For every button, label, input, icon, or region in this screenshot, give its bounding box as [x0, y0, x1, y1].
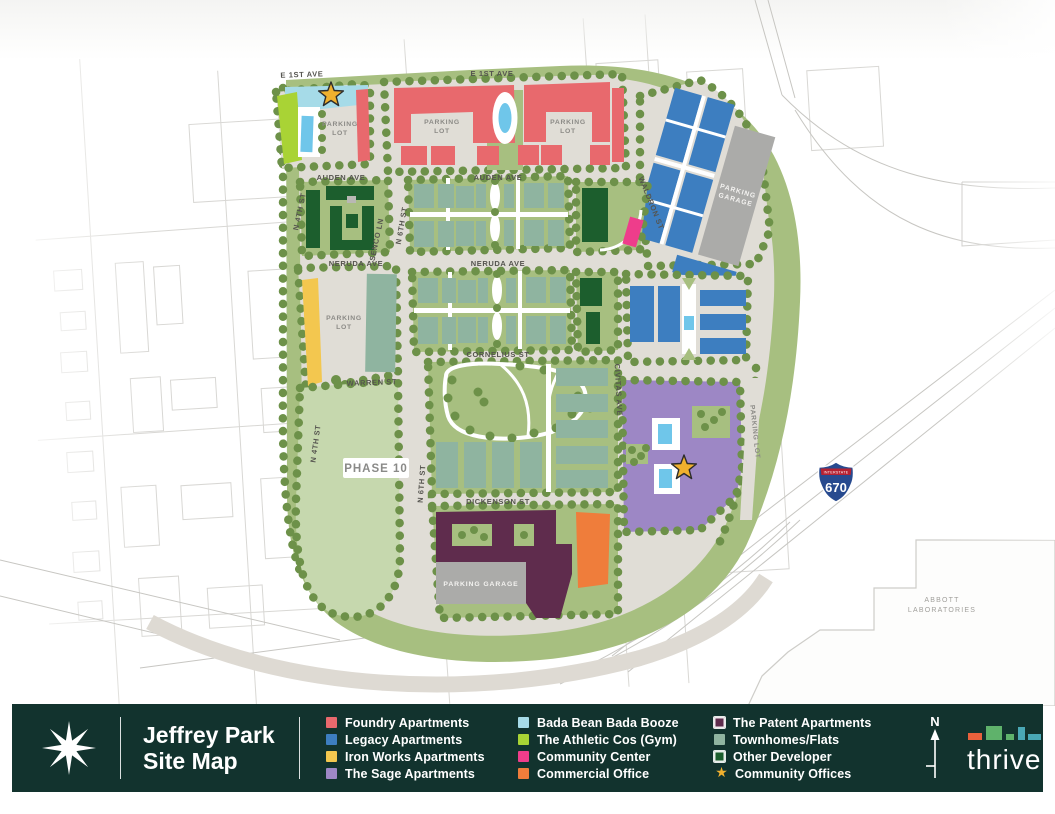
townhome [506, 316, 516, 344]
commercial-swatch [518, 768, 529, 779]
parking-lot-label: PARKING [550, 119, 586, 126]
phase-10-label: PHASE 10 [344, 463, 408, 475]
other-developer-building [580, 278, 602, 306]
townhome [476, 221, 486, 246]
jeffrey-park-site: PARKING LOT PARKING LOT [150, 66, 801, 685]
legend-label: Foundry Apartments [345, 716, 469, 730]
other-developer-building [346, 214, 358, 228]
bada-bean-swatch [518, 717, 529, 728]
townhome [436, 442, 458, 488]
route-number: 670 [825, 480, 847, 495]
legacy-building [700, 314, 746, 330]
street-cornelius-st: CORNELIUS ST [466, 350, 529, 359]
townhome [506, 278, 516, 303]
townhome [418, 317, 438, 344]
townhome [556, 420, 608, 438]
legend-item-patent: The Patent Apartments [714, 716, 892, 730]
map-title-line1: Jeffrey Park [143, 722, 275, 748]
thrive-wordmark: thrive [967, 744, 1041, 775]
townhome [464, 442, 486, 488]
commercial-office-building [576, 512, 610, 588]
legend-bar: Jeffrey Park Site Map Foundry Apartments… [12, 704, 1043, 792]
eight-point-star-icon [40, 719, 98, 777]
legend-item-commercial: Commercial Office [518, 767, 714, 781]
street-auden-ave: AUDEN AVE [317, 173, 366, 182]
abbott-label-line1: ABBOTT [924, 597, 959, 604]
townhome [478, 317, 488, 343]
interstate-text: INTERSTATE [824, 471, 849, 475]
legend-label: Commercial Office [537, 767, 649, 781]
townhome [414, 184, 434, 208]
sage-swatch [326, 768, 337, 779]
legend-label: The Athletic Cos (Gym) [537, 733, 677, 747]
legend-item-townhomes: Townhomes/Flats [714, 733, 892, 747]
pond [499, 103, 512, 133]
legend-item-iron-works: Iron Works Apartments [326, 750, 518, 764]
foundry-strip-building [356, 89, 370, 162]
logo-bar-orange [968, 733, 982, 740]
legend-item-athletic: The Athletic Cos (Gym) [518, 733, 714, 747]
parking-lot-label: PARKING [322, 121, 358, 128]
townhome [438, 221, 454, 247]
logo-bar-green-small [1006, 734, 1014, 740]
townhome [504, 184, 514, 208]
thrive-logo-graphic: thrive [960, 713, 1055, 779]
top-fade [0, 0, 1055, 60]
legend-label: The Sage Apartments [345, 767, 475, 781]
legend-item-foundry: Foundry Apartments [326, 716, 518, 730]
parking-lot-label: PARKING [424, 119, 460, 126]
block-other-developer-east [576, 272, 618, 352]
legacy-swatch [326, 734, 337, 745]
svg-text:LOT: LOT [560, 128, 576, 135]
legacy-building [658, 286, 680, 342]
pool [684, 316, 694, 330]
interstate-670-shield: INTERSTATE 670 [819, 462, 854, 502]
townhome [456, 186, 474, 208]
townhome [556, 368, 608, 386]
map-title: Jeffrey Park Site Map [143, 722, 275, 774]
townhome [458, 280, 476, 303]
svg-text:LOT: LOT [434, 128, 450, 135]
townhome [524, 220, 544, 246]
legend-label: Other Developer [733, 750, 832, 764]
pool [658, 424, 672, 444]
thrive-logo: thrive [960, 713, 1055, 784]
legend-item-bada-bean: Bada Bean Bada Booze [518, 716, 714, 730]
other-developer-building [306, 190, 320, 248]
athletic-swatch [518, 734, 529, 745]
legend-column-3: The Patent Apartments Townhomes/Flats Ot… [714, 716, 892, 781]
townhome [526, 277, 546, 303]
townhome [550, 277, 566, 303]
block-sage-apartments [622, 380, 742, 532]
street-warren-st: WARREN ST [347, 377, 398, 388]
site-map-page: ABBOTT LABORATORIES INTERSTATE 670 [0, 0, 1055, 814]
townhomes-swatch [714, 734, 725, 745]
left-fade [0, 0, 150, 706]
block-iron-works: PARKING LOT [298, 266, 398, 390]
logo-bar-teal [1018, 727, 1025, 740]
legend-label: Bada Bean Bada Booze [537, 716, 679, 730]
logo-bar-green [986, 726, 1002, 740]
pool [659, 469, 672, 488]
legend-item-community-offices: ★ Community Offices [714, 767, 892, 781]
community-center-swatch [518, 751, 529, 762]
other-developer-building [582, 188, 608, 242]
townhome [458, 317, 476, 343]
legend-column-2: Bada Bean Bada Booze The Athletic Cos (G… [518, 716, 714, 781]
townhome [556, 446, 608, 464]
block-patent-commercial: PARKING GARAGE [432, 504, 618, 618]
block-park-townhomes [428, 360, 618, 494]
townhome [492, 442, 514, 488]
legend-columns: Foundry Apartments Legacy Apartments Iro… [326, 716, 892, 781]
parking-lot-label: PARKING [326, 315, 362, 322]
map-canvas: ABBOTT LABORATORIES INTERSTATE 670 [0, 0, 1055, 706]
legend-label: Community Offices [735, 767, 851, 781]
pool [300, 116, 313, 152]
townhome [548, 183, 564, 208]
other-developer-building [586, 312, 600, 344]
townhome [442, 317, 456, 344]
legacy-building [630, 286, 654, 342]
parking-garage-label: PARKING GARAGE [443, 581, 518, 588]
block-foundry: PARKING LOT PARKING LOT [384, 74, 626, 172]
legend-label: Iron Works Apartments [345, 750, 485, 764]
legacy-building [700, 338, 746, 354]
townhome [418, 278, 438, 303]
block-phase-10: PHASE 10 [296, 380, 409, 617]
abbott-label-line2: LABORATORIES [908, 607, 976, 614]
legend-item-legacy: Legacy Apartments [326, 733, 518, 747]
thrive-star-logo [40, 719, 98, 777]
townhome [550, 316, 566, 344]
foundry-swatch [326, 717, 337, 728]
svg-text:LOT: LOT [336, 324, 352, 331]
block-townhomes-north [408, 176, 570, 252]
legend-label: Legacy Apartments [345, 733, 462, 747]
street-auden-ave: AUDEN AVE [474, 173, 523, 182]
block-other-dev-community-center [576, 182, 648, 252]
townhome [526, 316, 546, 344]
townhome [504, 220, 514, 246]
compass-n-label: N [930, 716, 939, 728]
iron-works-swatch [326, 751, 337, 762]
block-bada-bean-gym: PARKING LOT [276, 82, 370, 168]
divider [299, 717, 300, 779]
street-dickenson-st: DICKENSON ST [466, 497, 530, 506]
townhome [478, 278, 488, 303]
block-legacy-east [626, 274, 748, 362]
site-map: ABBOTT LABORATORIES INTERSTATE 670 [0, 0, 1055, 706]
abbott-laboratories-parcel: ABBOTT LABORATORIES [748, 540, 1055, 706]
townhome [548, 220, 564, 246]
townhome [524, 183, 544, 208]
street-e-1st-ave: E 1ST AVE [280, 69, 323, 79]
townhome [456, 221, 474, 246]
map-title-line2: Site Map [143, 748, 275, 774]
townhome [438, 184, 454, 208]
legend-item-sage: The Sage Apartments [326, 767, 518, 781]
street-neruda-ave: NERUDA AVE [471, 259, 525, 268]
legend-item-community-center: Community Center [518, 750, 714, 764]
street-e-1st-ave: E 1ST AVE [471, 69, 514, 78]
townhome-flats-building [365, 274, 397, 373]
right-fade [940, 0, 1055, 540]
legacy-building [700, 290, 746, 306]
townhome [476, 184, 486, 208]
svg-text:LOT: LOT [332, 130, 348, 137]
patent-swatch [714, 717, 725, 728]
community-offices-star-icon: ★ [714, 767, 729, 778]
legend-label: Townhomes/Flats [733, 733, 839, 747]
townhome [414, 221, 434, 247]
townhome [442, 278, 456, 303]
other-developer-building [330, 240, 374, 250]
logo-bar-teal-wide [1028, 734, 1041, 740]
legend-label: The Patent Apartments [733, 716, 871, 730]
north-arrow-icon [925, 728, 945, 780]
townhome [556, 470, 608, 488]
legend-item-other-developer: Other Developer [714, 750, 892, 764]
legend-column-1: Foundry Apartments Legacy Apartments Iro… [326, 716, 518, 781]
divider [120, 717, 121, 779]
other-developer-swatch [714, 751, 725, 762]
north-compass: N [920, 716, 950, 780]
townhome [556, 394, 608, 412]
block-townhomes-central [412, 270, 572, 352]
legend-label: Community Center [537, 750, 650, 764]
townhome [520, 442, 542, 488]
